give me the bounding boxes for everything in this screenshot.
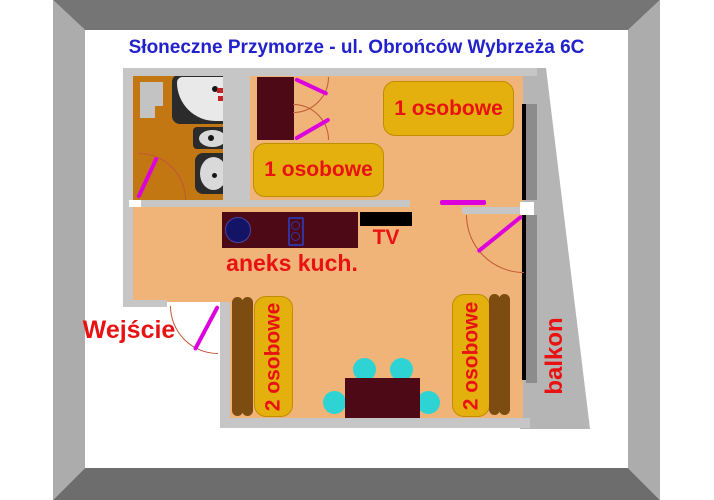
single-bed-1-label: 1 osobowe [394, 97, 503, 121]
floor-plan-image: Słoneczne Przymorze - ul. Obrońców Wybrz… [0, 0, 714, 500]
wall-bathroom-right [223, 68, 250, 202]
frame-left-bar [53, 0, 85, 500]
single-bed-2: 1 osobowe [253, 143, 384, 197]
bedroom-window-sill [526, 104, 537, 200]
hob-burner [291, 232, 300, 241]
entrance-label: Wejście [82, 316, 176, 345]
balcony-label: balkon [543, 314, 567, 398]
kitchenette-label: aneks kuch. [222, 250, 362, 277]
wall-top [123, 68, 537, 76]
livingroom-window-sill [526, 215, 537, 383]
single-bed-2-label: 1 osobowe [264, 158, 373, 182]
wall-livingroom-left [220, 302, 230, 428]
tv-set [360, 212, 412, 226]
double-bed-2: 2 osobowe [452, 294, 490, 417]
hob-burner [291, 221, 300, 230]
double-bed-1: 2 osobowe [254, 296, 293, 417]
wall-left [123, 68, 133, 305]
double-bed-1-label: 2 osobowe [262, 302, 286, 411]
wardrobe [257, 77, 294, 140]
bedroom-door-open [440, 200, 486, 205]
frame-bottom-bar [53, 468, 660, 500]
single-bed-1: 1 osobowe [383, 81, 514, 136]
dining-table [345, 378, 420, 418]
double-bed-2-label: 2 osobowe [459, 301, 483, 410]
frame-right-bar [628, 0, 660, 500]
sink-dot [212, 173, 217, 178]
chair [417, 391, 440, 414]
wall-partition-bedroom [127, 200, 410, 207]
kitchen-sink [225, 217, 251, 243]
double-bed-1-headboard [242, 297, 253, 416]
frame-top-bar [53, 0, 660, 30]
double-bed-2-headboard [499, 294, 510, 415]
wall-bottom [220, 418, 530, 428]
balcony-door-opening [520, 202, 534, 215]
chair [323, 391, 346, 414]
bathroom-door-opening [129, 200, 141, 207]
wall-hall-bottom [123, 300, 167, 307]
tv-label: TV [362, 226, 410, 250]
toilet-dot [208, 135, 214, 141]
page-title: Słoneczne Przymorze - ul. Obrońców Wybrz… [85, 36, 628, 60]
